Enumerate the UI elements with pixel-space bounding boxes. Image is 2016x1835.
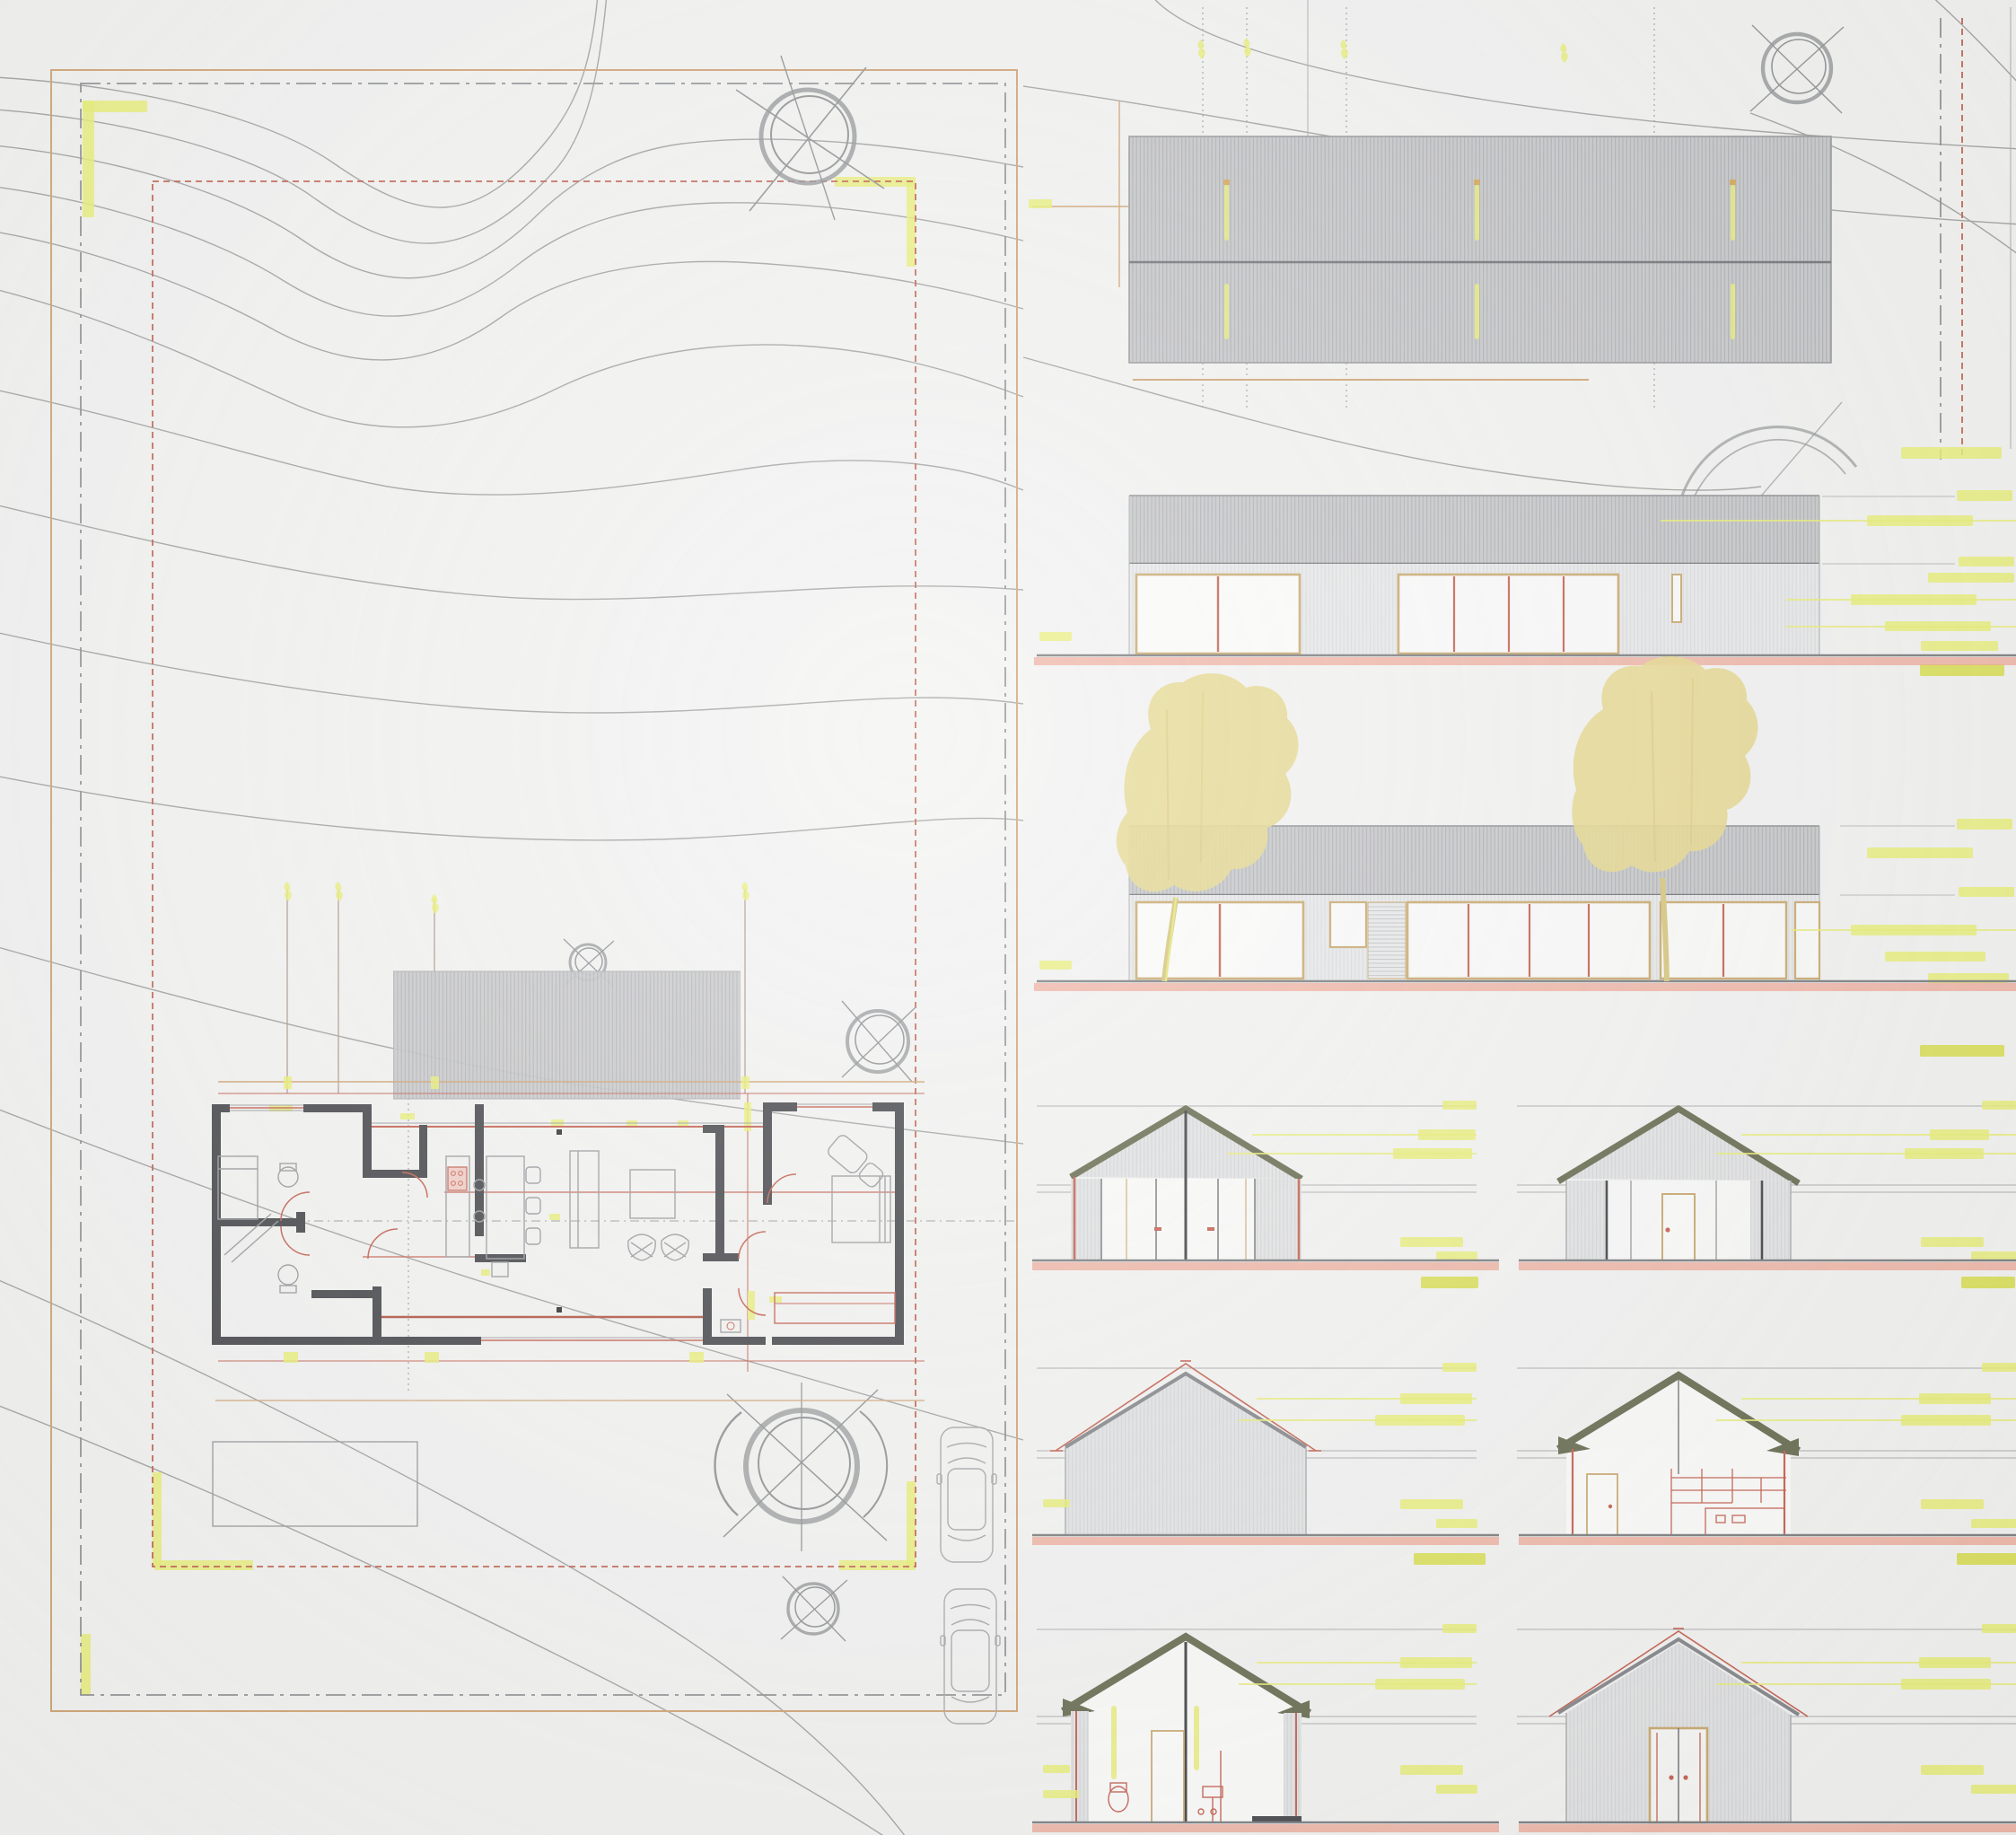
window-group	[1136, 902, 1819, 979]
roof-overhang-hatch	[393, 971, 741, 1099]
window-group	[1136, 575, 1681, 654]
drawing-sheet	[0, 0, 2016, 1835]
